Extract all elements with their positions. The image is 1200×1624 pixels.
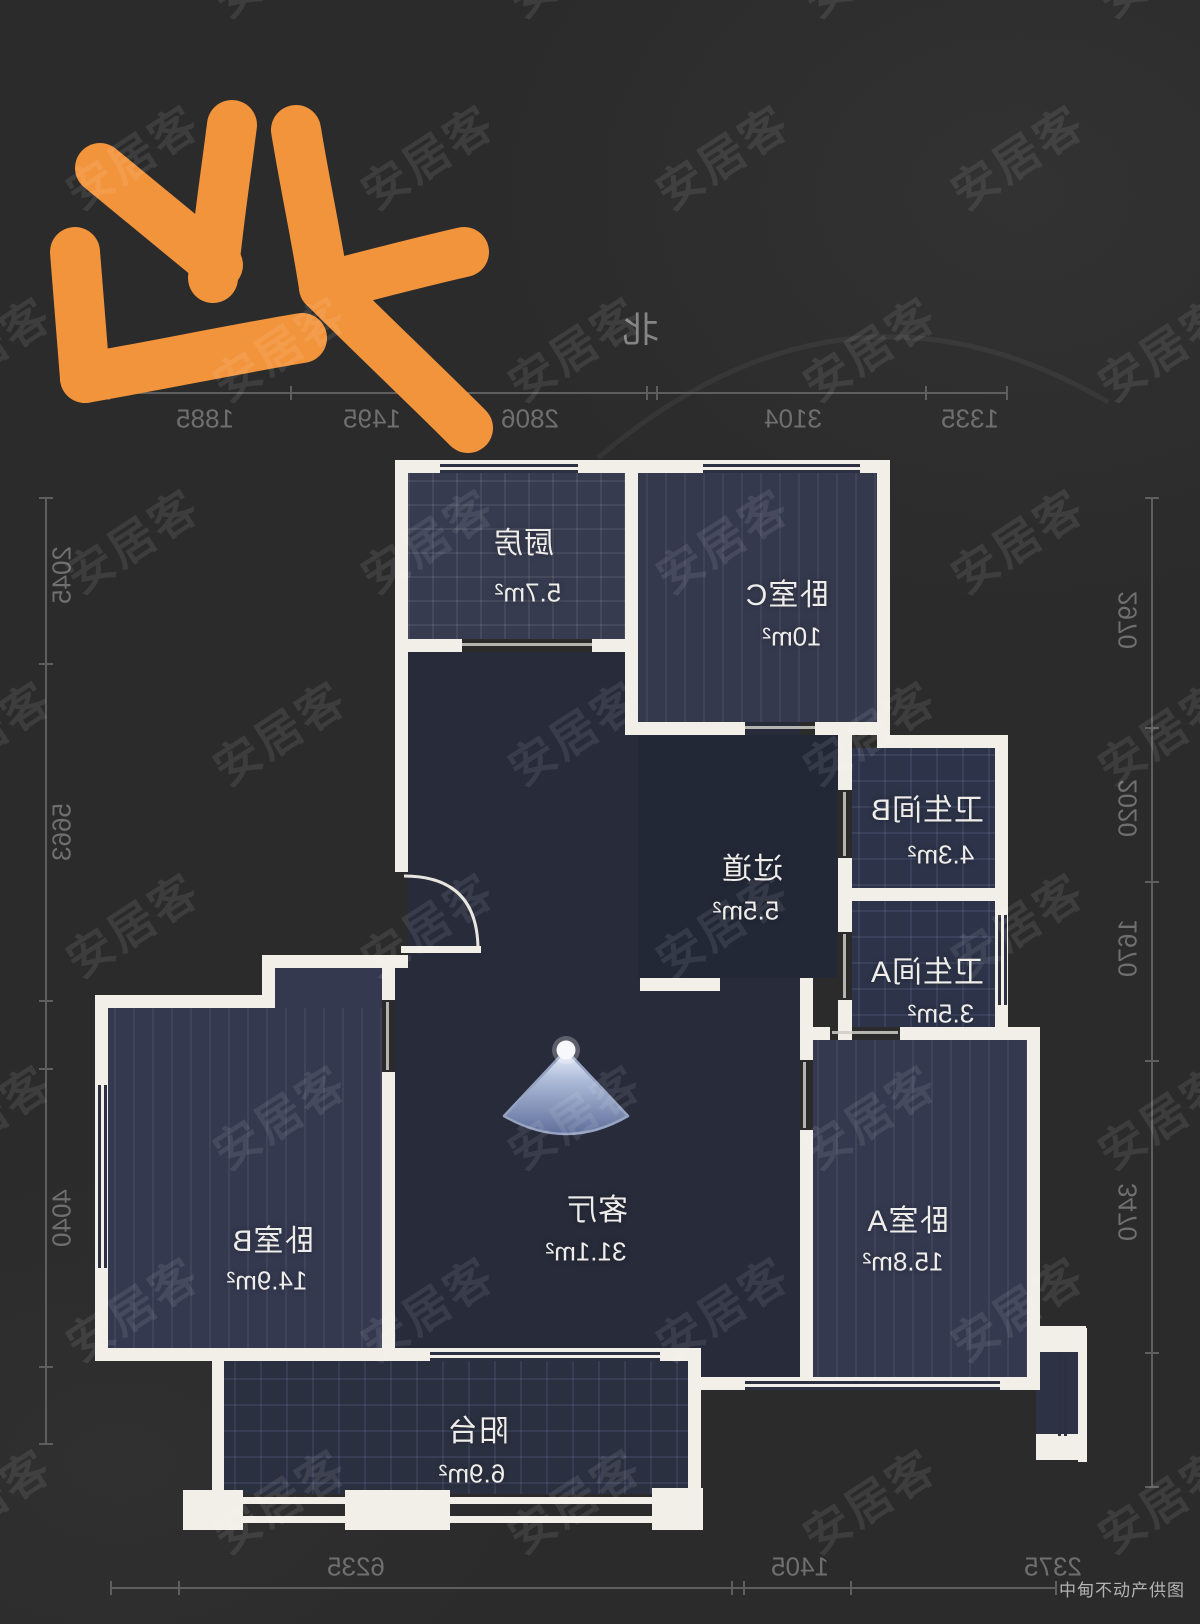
room-fills <box>108 473 1078 1494</box>
credit-caption: 中甸不动产供图 <box>1059 1576 1185 1601</box>
floorplan-drawing <box>0 0 1200 1624</box>
compass-arc <box>598 337 1108 458</box>
north-compass-label: 北 <box>623 301 659 353</box>
north-sketch <box>75 125 468 428</box>
floorplan-image: 北 厨房5.7m²卧室C10m²过道5.5m²卫生间B4.3m²卫生间A3.5m… <box>0 0 1200 1624</box>
